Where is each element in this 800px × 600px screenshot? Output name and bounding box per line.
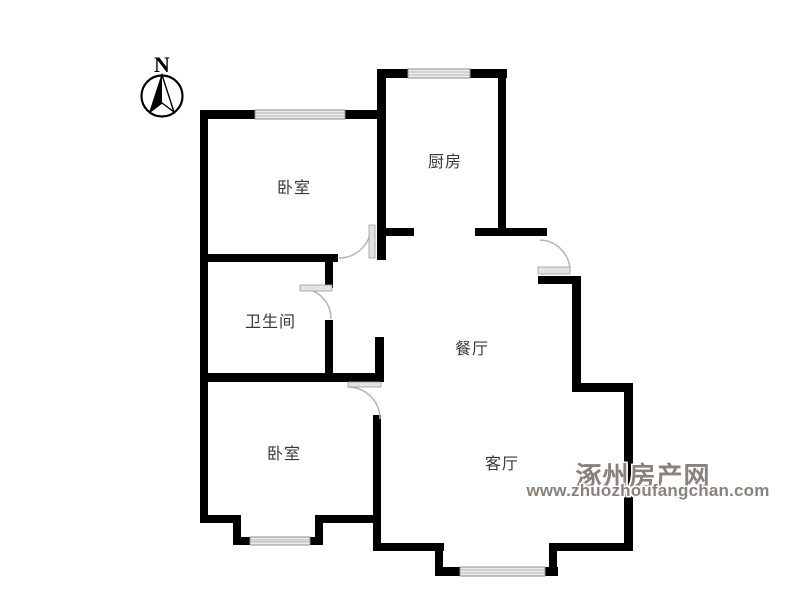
wall [325,254,333,288]
wall [377,228,414,236]
wall [572,383,633,392]
floorplan-drawing: N [0,0,800,600]
wall [200,373,384,382]
window-icon [250,537,310,545]
floorplan-page: N 卧室 厨房 卫生间 餐厅 客厅 卧室 涿州房产网 www.zhuozhouf… [0,0,800,600]
window-icon [255,110,345,119]
room-label-bathroom: 卫生间 [245,308,296,332]
wall [200,254,338,262]
wall [200,515,241,523]
wall [344,110,378,119]
room-label-bedroom-bottom: 卧室 [267,440,301,464]
doors [300,225,570,419]
wall [325,320,333,375]
entry-door-icon [538,240,570,274]
wall [200,110,257,119]
window-icon [460,567,545,576]
door-icon [339,225,375,258]
wall [475,228,547,236]
room-label-bedroom-top: 卧室 [277,174,311,198]
wall [375,337,384,382]
door-icon [348,382,381,419]
window-icon [408,69,470,78]
wall [373,415,381,551]
wall [373,543,444,551]
room-label-living: 客厅 [485,450,519,474]
door-icon [300,285,332,319]
compass-north-icon: N [142,52,183,117]
room-label-kitchen: 厨房 [428,148,462,172]
wall [498,69,506,236]
wall [549,543,633,551]
wall [572,276,581,391]
wall [377,69,410,78]
room-label-dining: 餐厅 [455,335,489,359]
wall [315,515,381,523]
watermark-site-url: www.zhuozhoufangchan.com [526,481,769,501]
wall [200,110,208,523]
